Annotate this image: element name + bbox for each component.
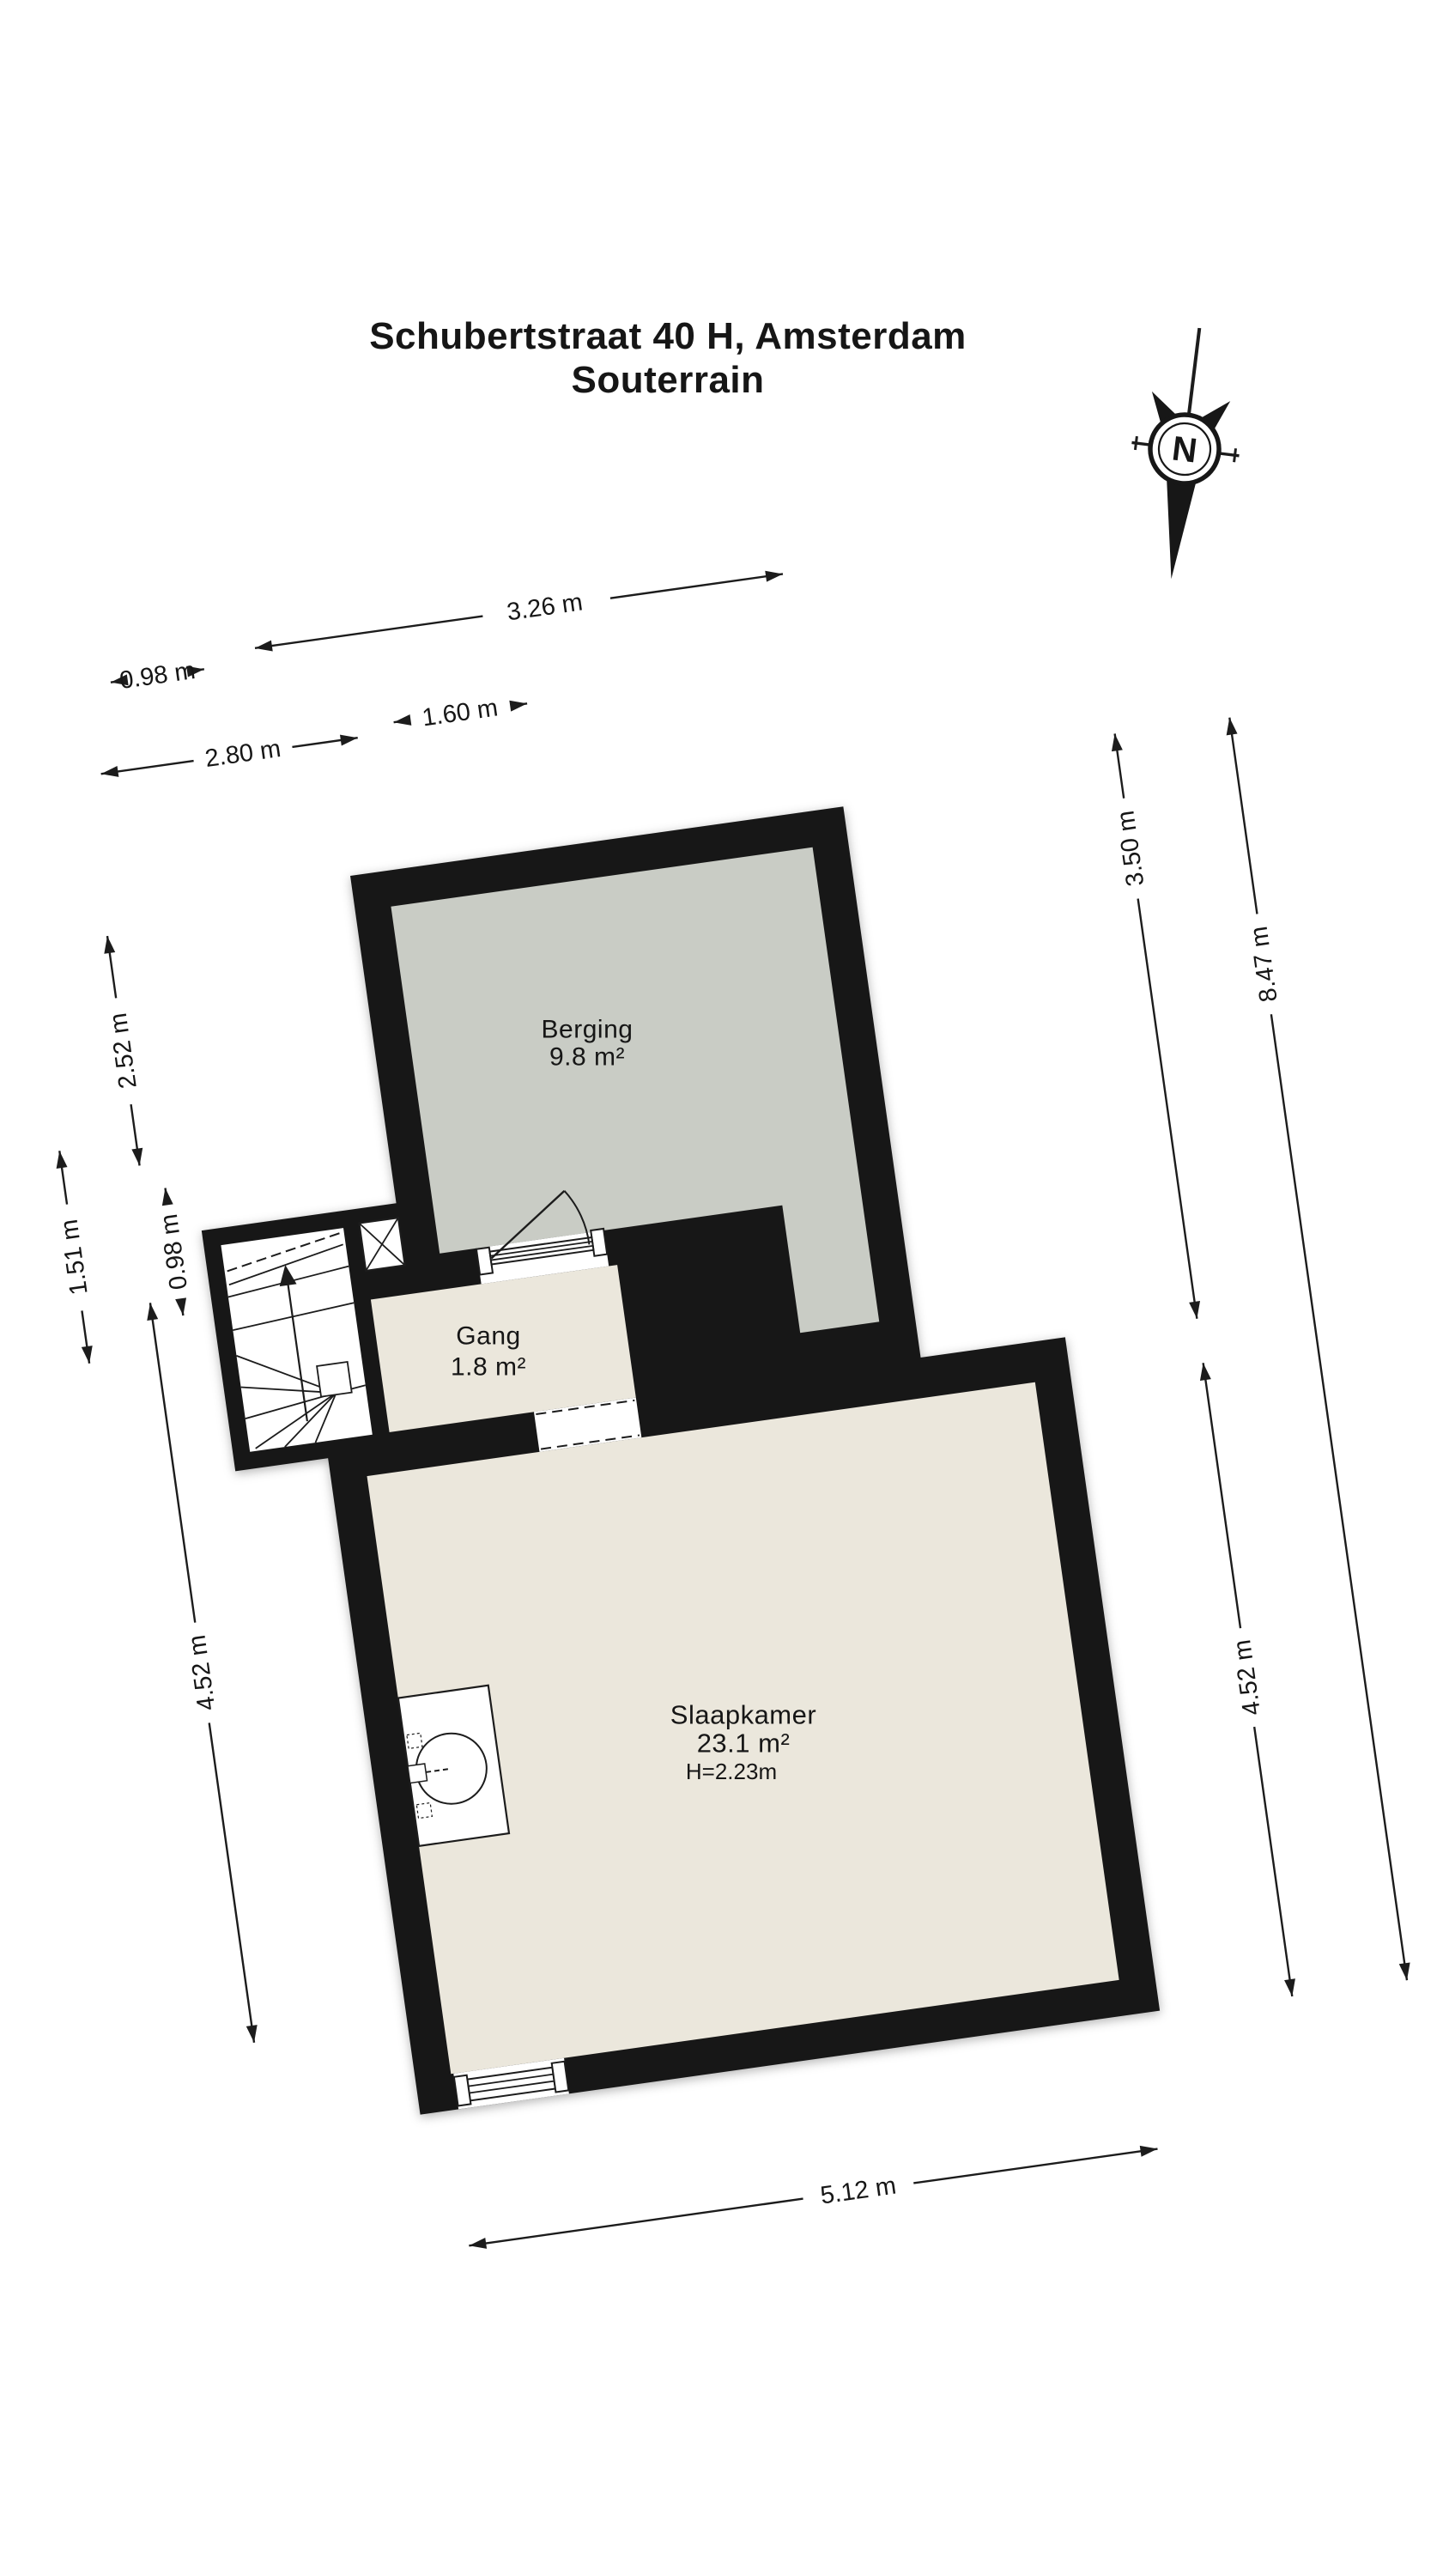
dim-hall-width: 2.80 m bbox=[99, 724, 360, 787]
svg-text:8.47 m: 8.47 m bbox=[1246, 925, 1283, 1004]
compass-letter: N bbox=[1170, 429, 1199, 470]
svg-text:4.52 m: 4.52 m bbox=[1228, 1638, 1266, 1717]
dim-berging-width: 3.26 m bbox=[253, 561, 785, 662]
floorplan-svg: Schubertstraat 40 H, Amsterdam Souterrai… bbox=[0, 0, 1449, 2576]
dim-slaapkamer-right-height: 4.52 m bbox=[1190, 1361, 1306, 1998]
svg-text:1.51 m: 1.51 m bbox=[56, 1218, 94, 1297]
title-line-2: Souterrain bbox=[571, 359, 764, 401]
floorplan-page: Schubertstraat 40 H, Amsterdam Souterrai… bbox=[0, 0, 1449, 2576]
svg-text:5.12 m: 5.12 m bbox=[819, 2172, 898, 2210]
svg-text:0.98 m: 0.98 m bbox=[155, 1212, 193, 1291]
svg-text:4.52 m: 4.52 m bbox=[183, 1633, 221, 1712]
compass-north-icon: N bbox=[1116, 322, 1254, 586]
berging-label: Berging bbox=[542, 1016, 634, 1044]
svg-text:2.52 m: 2.52 m bbox=[105, 1012, 142, 1091]
dim-right-upper-height: 3.50 m bbox=[1101, 732, 1210, 1321]
dim-berging-left-height: 2.52 m bbox=[94, 934, 153, 1168]
building bbox=[155, 787, 1160, 2128]
dim-gang-height: 0.98 m bbox=[152, 1186, 197, 1317]
dim-slaapkamer-width: 5.12 m bbox=[467, 2136, 1160, 2259]
slaapkamer-label: Slaapkamer bbox=[670, 1700, 816, 1730]
dim-door-section-width: 1.60 m bbox=[391, 690, 529, 737]
svg-text:1.60 m: 1.60 m bbox=[421, 694, 500, 732]
title-line-1: Schubertstraat 40 H, Amsterdam bbox=[369, 315, 967, 357]
berging-area: 9.8 m² bbox=[549, 1043, 625, 1072]
sink-faucet bbox=[408, 1764, 427, 1783]
plan-title: Schubertstraat 40 H, Amsterdam Souterrai… bbox=[369, 315, 967, 401]
dim-stair-width: 0.98 m bbox=[109, 655, 206, 696]
sink bbox=[398, 1686, 509, 1846]
dim-total-height: 8.47 m bbox=[1216, 715, 1420, 1982]
compass-south-spike bbox=[1154, 471, 1198, 581]
svg-text:3.50 m: 3.50 m bbox=[1112, 809, 1149, 888]
slaapkamer-ceiling-height: H=2.23m bbox=[686, 1759, 777, 1784]
shaft-icon bbox=[359, 1218, 404, 1271]
svg-text:0.98 m: 0.98 m bbox=[118, 657, 197, 695]
dim-stairwell-height: 1.51 m bbox=[45, 1149, 102, 1365]
gang-label: Gang bbox=[456, 1322, 520, 1351]
slaapkamer-area: 23.1 m² bbox=[697, 1728, 791, 1759]
svg-text:2.80 m: 2.80 m bbox=[203, 735, 282, 773]
gang-area: 1.8 m² bbox=[451, 1353, 526, 1382]
svg-text:3.26 m: 3.26 m bbox=[506, 588, 585, 626]
plan-rotated-group: 3.26 m 0.98 m 1.60 m 2.80 m bbox=[0, 500, 1440, 2297]
